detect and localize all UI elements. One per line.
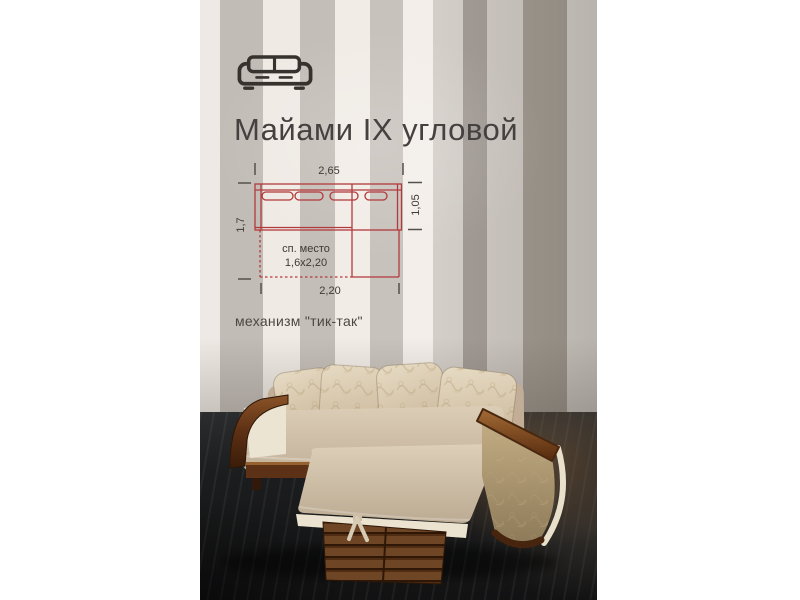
dim-label-left: 1,7 xyxy=(235,217,247,232)
sofa-illustration-svg xyxy=(220,356,592,592)
corner-sofa-photo xyxy=(220,356,592,592)
plan-outline xyxy=(255,184,402,277)
photo-content-area: Майами IX угловой xyxy=(200,0,597,600)
right-armrest xyxy=(477,409,563,545)
sleeping-area-label-line1: сп. место xyxy=(282,243,330,255)
dimensions-diagram: 2,65 2,20 1,7 1,05 сп. место 1,6х2,20 xyxy=(230,158,430,298)
sofa-leg xyxy=(252,478,261,490)
dim-label-bottom: 2,20 xyxy=(319,285,340,297)
sleeping-area-label-line2: 1,6х2,20 xyxy=(285,257,327,269)
dimension-ticks xyxy=(238,163,422,294)
sofa-icon-svg xyxy=(236,54,314,96)
mechanism-note: механизм "тик-так" xyxy=(235,313,363,329)
product-title: Майами IX угловой xyxy=(234,112,518,148)
sofa-outline-icon xyxy=(236,54,314,96)
dim-label-right: 1,05 xyxy=(410,194,422,215)
dim-label-top: 2,65 xyxy=(318,165,339,177)
plan-diagram-svg: 2,65 2,20 1,7 1,05 сп. место 1,6х2,20 xyxy=(230,158,430,298)
